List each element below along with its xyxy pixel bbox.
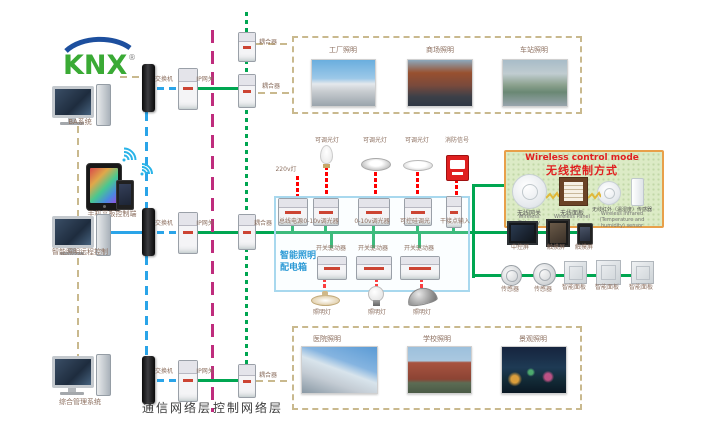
sensor-device — [533, 263, 556, 286]
power-input-label: 220v灯 — [275, 167, 296, 174]
field-line — [120, 76, 140, 78]
scene-label: 工厂照明 — [329, 46, 357, 54]
scene-label: 商场照明 — [426, 46, 454, 54]
layer-label-communication: 通信网络层 — [142, 399, 212, 416]
candle-lamp — [320, 145, 333, 168]
din-module-switch-actuator — [400, 256, 440, 280]
coupler-label: 耦合器 — [259, 40, 277, 47]
din-label: 干接点输入 — [440, 219, 470, 226]
comm-line — [145, 112, 148, 208]
gateway-label: IP网关 — [196, 77, 213, 84]
central-screen-device — [507, 221, 538, 245]
din-label: 0-10v调光器 — [354, 219, 389, 226]
bus-line — [474, 184, 506, 187]
device-label: 智能面板 — [562, 285, 586, 292]
bulb-lamp — [368, 286, 384, 302]
wireless-sensor-device — [631, 178, 644, 206]
ip-gateway-device — [178, 212, 198, 254]
bus-backbone — [245, 12, 248, 32]
ip-gateway-device — [178, 360, 198, 402]
flat-lamp — [403, 160, 433, 171]
registered-mark: ® — [128, 53, 136, 62]
device-label: 触摸屏 — [547, 245, 565, 252]
coupler-device — [238, 74, 256, 108]
wireless-sensor-label-en: Wireless infrared (Temperature and humid… — [591, 212, 653, 229]
monitor-screen — [52, 86, 94, 118]
knx-logo-text: KNX — [63, 50, 128, 80]
field-line — [77, 126, 79, 216]
device-label: 智能面板 — [629, 285, 653, 292]
din-label: 开关驱动器 — [358, 246, 388, 253]
scene-label: 学校照明 — [423, 335, 451, 343]
scene-label: 医院照明 — [313, 335, 341, 343]
fire-alarm-device — [446, 155, 469, 181]
ip-gateway-device — [178, 68, 198, 110]
photo-factory-lighting — [311, 59, 376, 107]
ceiling-lamp — [311, 291, 340, 306]
wireless-panel-device — [559, 177, 588, 206]
comm-line — [145, 256, 148, 356]
switch-label: 交换机 — [155, 369, 173, 376]
dimmable-lamp-label: 可调光灯 — [315, 138, 339, 145]
touch-screen-device — [577, 223, 593, 245]
device-label: 触摸屏 — [575, 245, 593, 252]
din-module-switch-actuator — [356, 256, 392, 280]
comm-line — [157, 231, 177, 234]
switch-label: 交换机 — [155, 77, 173, 84]
terminal-label: 综合管理系统 — [59, 398, 101, 406]
downlight-lamp — [361, 158, 391, 171]
dimmable-lamp-label: 可调光灯 — [405, 138, 429, 145]
comm-line — [157, 379, 177, 382]
knx-logo-graphic: KNX ® — [60, 34, 138, 80]
gateway-label: IP网关 — [196, 369, 213, 376]
ethernet-switch-device — [142, 208, 155, 256]
rf-link-icon — [588, 186, 601, 205]
lamp-label: 照明灯 — [413, 310, 431, 317]
coupler-device — [238, 32, 256, 62]
wifi-signal-icon — [132, 164, 152, 184]
din-label: 开关驱动器 — [404, 246, 434, 253]
layer-label-control: 控制网络层 — [213, 399, 283, 416]
device-label: 传感器 — [534, 287, 552, 294]
photo-school-lighting — [407, 346, 472, 394]
coupler-label: 耦合器 — [254, 221, 272, 228]
touch-screen-device — [546, 219, 570, 247]
switch-label: 交换机 — [155, 221, 173, 228]
power-line — [416, 172, 419, 198]
bus-line — [520, 274, 534, 277]
din-label: 开关驱动器 — [316, 246, 346, 253]
gateway-label: IP网关 — [196, 221, 213, 228]
dimmable-lamp-label: 可调光灯 — [363, 138, 387, 145]
computer-tower — [96, 354, 111, 396]
bus-backbone — [245, 248, 248, 364]
ethernet-switch-device — [142, 356, 155, 404]
power-line — [325, 166, 328, 198]
din-module-switch-actuator — [317, 256, 347, 280]
wireless-gateway-device — [512, 174, 547, 209]
field-line — [258, 92, 292, 94]
lamp-label: 照明灯 — [313, 310, 331, 317]
power-line — [374, 172, 377, 198]
sensor-device — [501, 265, 522, 286]
scene-label: 景观照明 — [519, 335, 547, 343]
fire-signal-label: 消防信号 — [445, 138, 469, 145]
terminal-label: BA系统 — [68, 118, 92, 126]
device-label: 智能面板 — [595, 285, 619, 292]
photo-mall-lighting — [407, 59, 473, 107]
monitor-screen — [52, 356, 94, 388]
rf-link-icon — [546, 186, 559, 205]
field-line — [77, 258, 79, 356]
computer-tower — [96, 84, 111, 126]
bus-backbone — [245, 110, 248, 214]
scene-label: 车站照明 — [520, 46, 548, 54]
din-label: 0-10v调光器 — [303, 219, 338, 226]
power-line — [296, 176, 299, 198]
field-line — [256, 380, 292, 382]
comm-line — [157, 87, 177, 90]
photo-hospital-lighting — [301, 346, 378, 394]
device-label: 中控屏 — [511, 245, 529, 252]
photo-station-lighting — [502, 59, 568, 107]
monitor-screen — [52, 216, 94, 248]
din-label: 总线电源 — [279, 219, 303, 226]
bus-line — [474, 274, 502, 277]
wireless-title-zh: 无线控制方式 — [546, 162, 618, 178]
monitor-base — [60, 392, 84, 395]
smart-panel-device — [631, 261, 654, 284]
knx-system-diagram: KNX ® — [0, 0, 715, 443]
terminal-label: 智能照明远程控制 — [52, 248, 108, 256]
ethernet-switch-device — [142, 64, 155, 112]
smart-panel-device — [564, 261, 587, 284]
device-label: 传感器 — [501, 287, 519, 294]
coupler-label: 耦合器 — [259, 373, 277, 380]
photo-landscape-lighting — [501, 346, 567, 394]
din-label: 可控硅调光 — [400, 219, 430, 226]
terminal-label: 手机平板控制端 — [88, 210, 137, 218]
coupler-label: 耦合器 — [262, 84, 280, 91]
distribution-box-title: 配电箱 — [280, 260, 307, 273]
lamp-label: 照明灯 — [368, 310, 386, 317]
smart-panel-device — [596, 260, 621, 285]
coupler-device — [238, 364, 256, 398]
phone-device — [116, 180, 134, 210]
bus-line — [474, 231, 507, 234]
